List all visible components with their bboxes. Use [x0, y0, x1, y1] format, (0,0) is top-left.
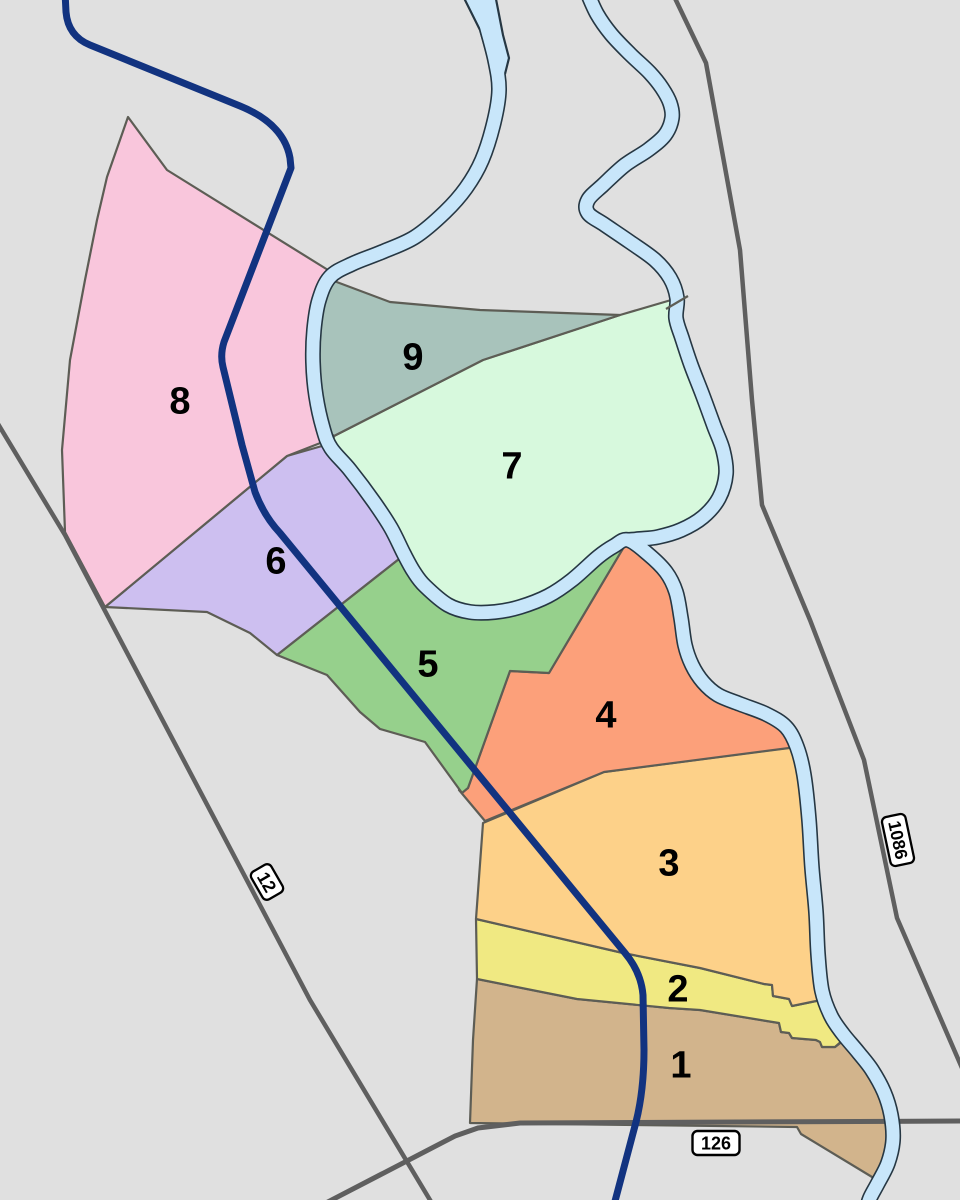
- svg-text:8: 8: [169, 381, 190, 423]
- svg-text:126: 126: [701, 1134, 731, 1154]
- svg-text:2: 2: [667, 969, 688, 1011]
- svg-text:5: 5: [417, 644, 438, 686]
- svg-text:7: 7: [501, 446, 522, 488]
- svg-text:9: 9: [402, 337, 423, 379]
- svg-text:1: 1: [670, 1045, 691, 1087]
- svg-text:4: 4: [595, 695, 616, 737]
- svg-text:3: 3: [658, 843, 679, 885]
- svg-text:6: 6: [265, 541, 286, 583]
